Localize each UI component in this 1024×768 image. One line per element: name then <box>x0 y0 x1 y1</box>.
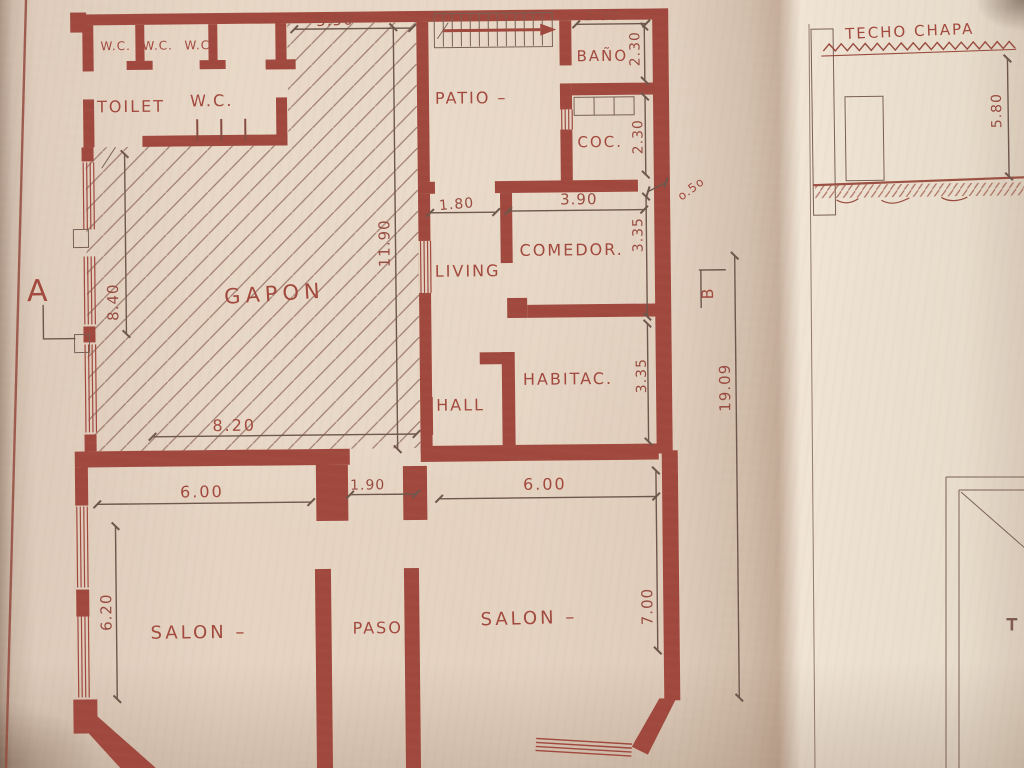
blueprint-photo: W.C. W.C. W.C. TOILET W.C. GAPON PATIO –… <box>0 0 1024 768</box>
dim-habitac-height: 3.35 <box>634 358 650 393</box>
room-label-hall: HALL <box>436 395 485 415</box>
section-drawing: TECHO CHAPA 5.80 <box>811 19 1024 215</box>
section-door <box>845 96 884 181</box>
room-label-salon-left: SALON – <box>150 622 247 644</box>
room-label-patio: PATIO – <box>435 88 508 108</box>
partial-drawing: T <box>946 477 1024 768</box>
floor-plan: W.C. W.C. W.C. TOILET W.C. GAPON PATIO –… <box>24 6 740 768</box>
kitchen-counter <box>574 97 634 116</box>
room-label-wc: W.C. <box>190 91 234 110</box>
dim-salon-right-height: 7.00 <box>638 588 656 626</box>
dim-top-bano: 2.30 <box>584 8 619 24</box>
dim-salon-right-width: 6.00 <box>523 474 567 493</box>
galpon-hatch <box>84 22 420 451</box>
section-title: TECHO CHAPA <box>844 20 975 43</box>
dim-salon-left-width: 6.00 <box>180 482 224 501</box>
room-label-living: LIVING <box>435 261 501 281</box>
dim-total-height: 19.09 <box>716 364 735 412</box>
room-label-wc-stall-2: W.C. <box>142 39 173 53</box>
room-label-habitac: HABITAC. <box>523 369 613 389</box>
stairs-direction-arrow <box>540 24 556 36</box>
room-label-wc-stall-1: W.C. <box>100 39 131 53</box>
dim-top-galpon: 5.50 <box>316 10 354 30</box>
dim-section-height: 5.80 <box>989 93 1005 128</box>
blueprint-drawing: W.C. W.C. W.C. TOILET W.C. GAPON PATIO –… <box>0 0 1024 768</box>
dim-paso-width: 1.90 <box>350 477 385 493</box>
room-label-wc-stall-3: W.C. <box>184 38 215 52</box>
dim-coc-height: 2.30 <box>630 119 646 154</box>
section-marker-a: A <box>27 274 48 309</box>
dim-salon-left-height: 6.20 <box>97 593 115 631</box>
partial-label: T <box>1006 615 1019 634</box>
dim-galpon-height: 11.90 <box>375 219 394 267</box>
room-label-salon-right: SALON – <box>480 607 577 631</box>
room-label-toilet: TOILET <box>96 97 165 117</box>
room-label-bano: BAÑO <box>576 46 628 66</box>
room-label-comedor: COMEDOR. <box>520 240 624 260</box>
dim-offset: o.5o <box>675 174 707 203</box>
room-label-coc: COC. <box>577 133 623 151</box>
dim-galpon-left-height: 8.40 <box>104 283 122 321</box>
dim-bano-height: 2.30 <box>627 31 643 66</box>
corrugated-roof <box>823 41 1015 51</box>
dim-living-door: 1.80 <box>438 195 474 214</box>
room-label-paso: PASO <box>352 618 403 638</box>
dim-galpon-width: 8.20 <box>212 416 256 435</box>
section-marker-b: B <box>698 288 717 299</box>
dim-comedor-width: 3.90 <box>560 190 598 208</box>
dim-comedor-height: 3.35 <box>630 217 646 252</box>
